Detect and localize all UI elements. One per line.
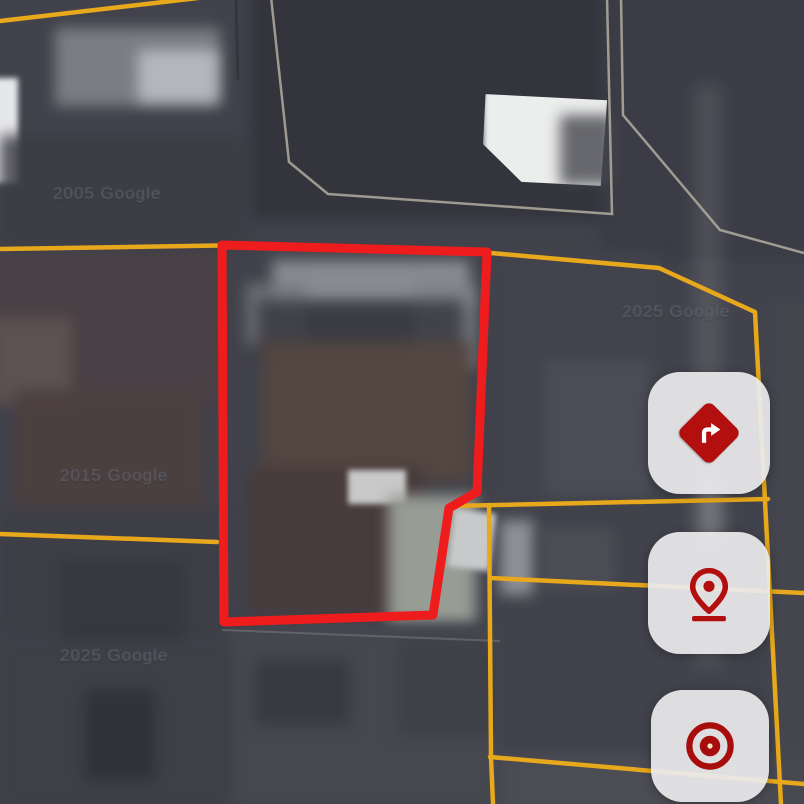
- survey-line: [236, 0, 238, 80]
- satellite-map-view[interactable]: 2005 Google 2025 Google 2015 Google 2025…: [0, 0, 804, 804]
- directions-button[interactable]: [648, 372, 770, 494]
- google-watermark: 2005 Google: [53, 184, 161, 204]
- google-watermark: 2025 Google: [622, 302, 730, 322]
- map-pin-icon: [678, 562, 740, 624]
- recenter-target-button[interactable]: [651, 690, 769, 802]
- turn-right-diamond-icon: [678, 402, 740, 464]
- show-location-button[interactable]: [648, 532, 770, 654]
- google-watermark: 2025 Google: [60, 646, 168, 666]
- bullseye-icon: [679, 715, 741, 777]
- survey-line: [271, 0, 804, 253]
- google-watermark: 2015 Google: [60, 466, 168, 486]
- survey-line: [222, 630, 500, 641]
- highlighted-parcel-boundary[interactable]: [222, 245, 487, 622]
